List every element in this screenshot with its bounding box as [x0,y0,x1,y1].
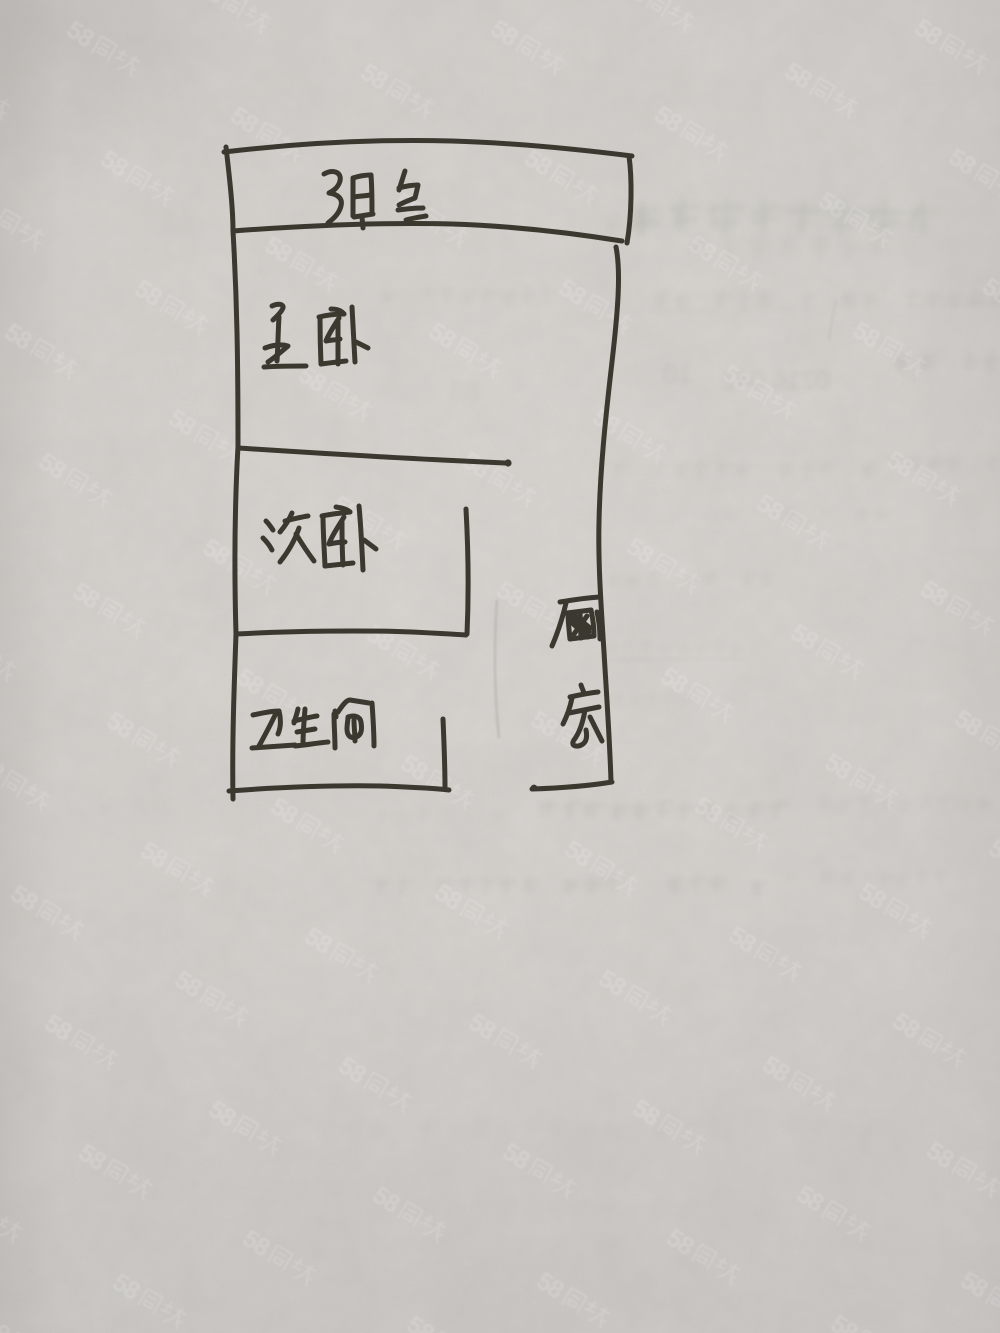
svg-text:10: 10 [663,359,692,389]
svg-text:88: 88 [449,375,480,406]
